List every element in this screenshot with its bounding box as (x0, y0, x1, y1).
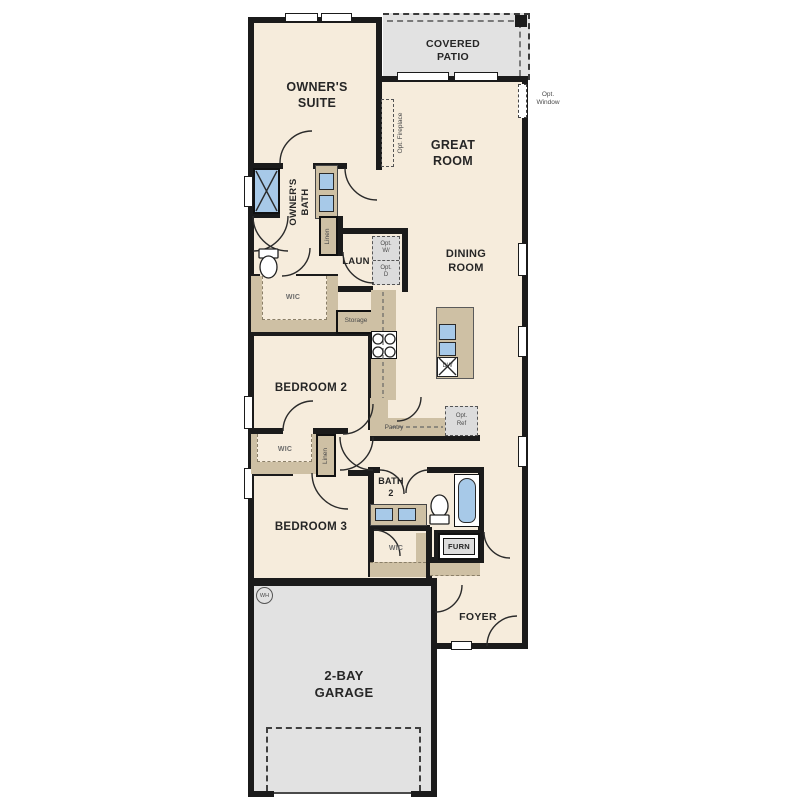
door-arc (397, 397, 421, 421)
range-burner (373, 334, 383, 344)
label-opt-fireplace: Opt. Fireplace (391, 99, 411, 167)
door-arc (282, 248, 310, 276)
room-label-laundry: LAUN (331, 255, 381, 269)
label-wic-bed3: WIC (368, 543, 424, 555)
toilet-bowl (260, 256, 277, 278)
room-label-dining-room: DINING ROOM (416, 244, 516, 278)
room-label-bedroom3: BEDROOM 3 (246, 519, 376, 535)
label-linen-hall: Linen (316, 435, 336, 477)
floor-plan: COVERED PATIO 2-BAY GARAGE WH (0, 0, 810, 810)
door-arc (280, 131, 312, 163)
toilet-bowl (431, 495, 448, 517)
label-wic-owners: WIC (263, 292, 323, 304)
range-burner (385, 347, 395, 357)
door-arc (312, 473, 348, 509)
room-label-foyer: FOYER (428, 611, 528, 625)
door-arc (345, 168, 377, 200)
toilet-tank (430, 515, 449, 524)
room-label-bath2: BATH 2 (371, 476, 411, 500)
door-arc (343, 404, 373, 434)
door-arc (435, 585, 462, 612)
range-burner (373, 347, 383, 357)
door-arc (283, 401, 313, 431)
dishwasher-x (439, 358, 456, 375)
label-linen-bath: Linen (319, 216, 338, 257)
room-label-bedroom2: BEDROOM 2 (246, 380, 376, 396)
room-label-great-room: GREAT ROOM (393, 134, 513, 172)
door-arc (484, 532, 510, 558)
label-opt-window: Opt. Window (531, 88, 565, 110)
label-wic-bed2: WIC (255, 444, 315, 456)
room-label-owners-suite: OWNER'S SUITE (247, 75, 387, 115)
range-burner (385, 334, 395, 344)
